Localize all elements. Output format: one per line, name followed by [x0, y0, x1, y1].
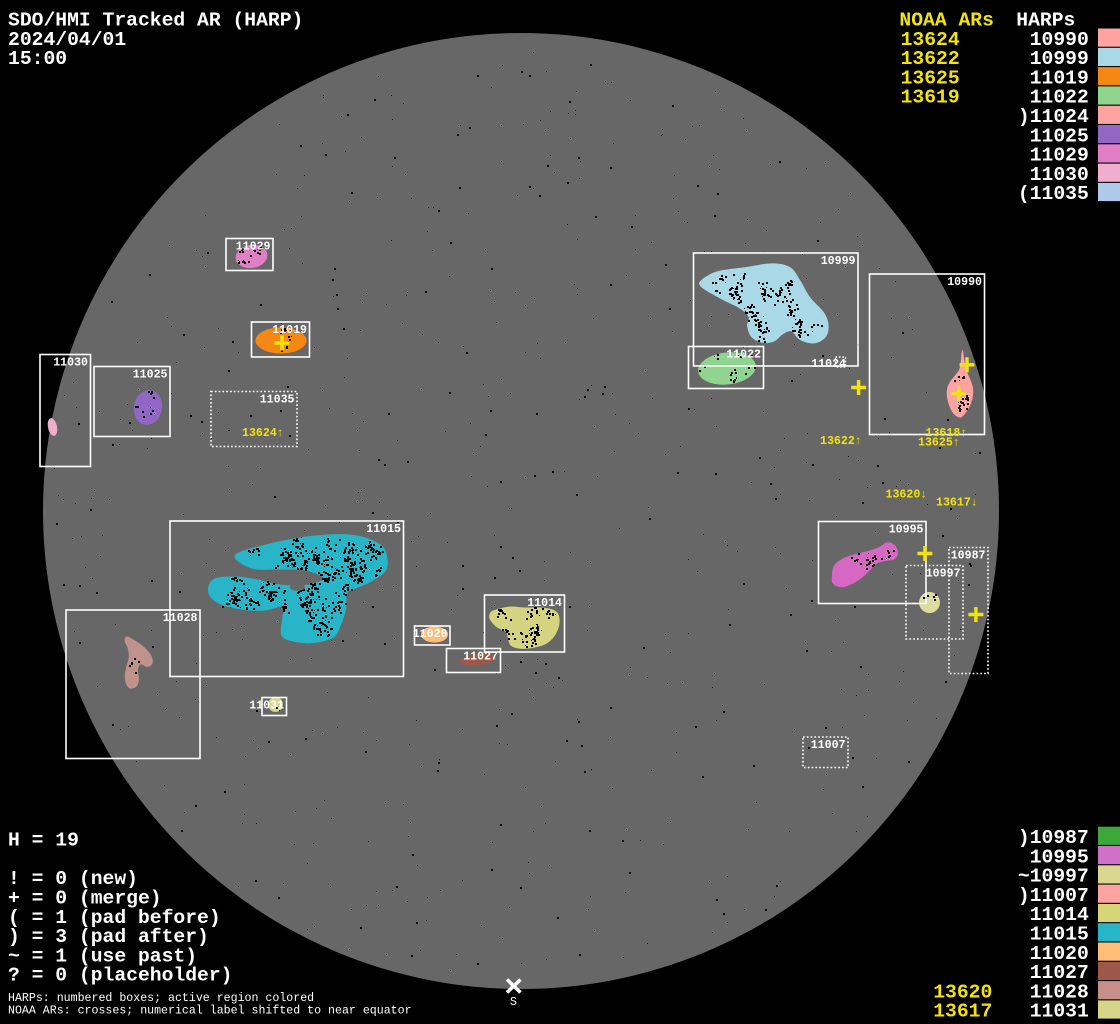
svg-text:11014: 11014: [527, 597, 562, 610]
svg-text:11031: 11031: [249, 700, 284, 713]
svg-text:13620↓: 13620↓: [886, 489, 928, 502]
svg-text:(11035: (11035: [1018, 183, 1089, 205]
svg-text:10990: 10990: [947, 276, 982, 289]
svg-text:11030: 11030: [53, 357, 88, 370]
svg-text:11019: 11019: [272, 324, 307, 337]
svg-text:13625↑: 13625↑: [918, 437, 960, 450]
svg-text:? = 0 (placeholder): ? = 0 (placeholder): [8, 965, 232, 987]
svg-text:13617: 13617: [933, 1001, 992, 1023]
svg-text:NOAA ARs: crosses; numerical l: NOAA ARs: crosses; numerical label shift…: [8, 1005, 412, 1018]
svg-text:HARPs: numbered boxes; active: HARPs: numbered boxes; active region col…: [8, 992, 314, 1005]
svg-text:13622↑: 13622↑: [820, 435, 862, 448]
svg-text:10999: 10999: [821, 255, 856, 268]
svg-text:15:00: 15:00: [8, 48, 67, 70]
svg-text:11015: 11015: [366, 523, 401, 536]
svg-text:13624↑: 13624↑: [242, 427, 284, 440]
svg-text:11024: 11024: [811, 358, 846, 371]
svg-text:11020: 11020: [413, 628, 448, 641]
svg-text:10995: 10995: [889, 524, 924, 537]
svg-text:11022: 11022: [726, 349, 761, 362]
svg-text:H = 19: H = 19: [8, 830, 79, 852]
svg-text:13619: 13619: [901, 87, 960, 109]
svg-text:11029: 11029: [236, 241, 271, 254]
svg-text:11025: 11025: [133, 369, 168, 382]
svg-text:13617↓: 13617↓: [936, 497, 978, 510]
svg-text:11035: 11035: [260, 394, 295, 407]
svg-text:10987: 10987: [951, 550, 986, 563]
svg-text:11007: 11007: [811, 739, 846, 752]
svg-text:10997: 10997: [926, 568, 961, 581]
svg-text:11028: 11028: [163, 612, 198, 625]
svg-text:11031: 11031: [1030, 1001, 1089, 1023]
svg-text:S: S: [510, 996, 517, 1009]
